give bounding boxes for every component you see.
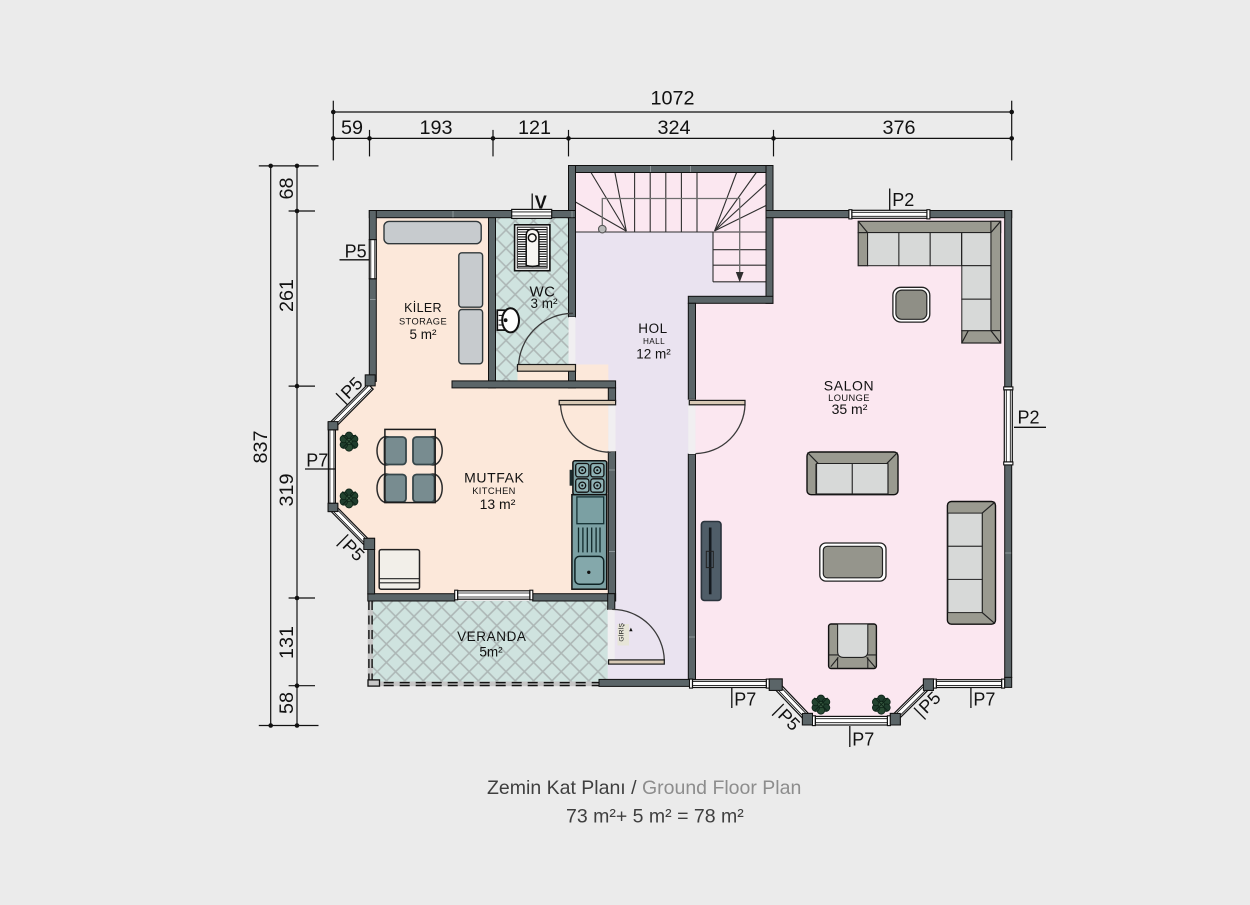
svg-text:324: 324 — [657, 117, 690, 139]
svg-text:59: 59 — [341, 117, 363, 139]
svg-text:Zemin Kat Planı / Ground Floor: Zemin Kat Planı / Ground Floor Plan — [487, 777, 801, 799]
svg-text:HOL: HOL — [638, 321, 668, 336]
svg-text:13 m²: 13 m² — [480, 496, 516, 512]
svg-text:12 m²: 12 m² — [636, 346, 671, 361]
svg-text:261: 261 — [276, 279, 298, 312]
svg-text:58: 58 — [276, 692, 298, 714]
svg-text:KITCHEN: KITCHEN — [472, 486, 516, 496]
svg-text:HALL: HALL — [643, 337, 665, 346]
svg-text:1072: 1072 — [650, 88, 694, 110]
svg-text:P2: P2 — [1018, 408, 1040, 428]
svg-text:3 m²: 3 m² — [531, 296, 559, 311]
svg-text:131: 131 — [276, 626, 298, 659]
svg-text:35 m²: 35 m² — [832, 401, 868, 417]
svg-text:73 m²+ 5 m² = 78 m²: 73 m²+ 5 m² = 78 m² — [566, 806, 744, 828]
svg-text:P7: P7 — [973, 690, 995, 710]
svg-text:P7: P7 — [734, 690, 756, 710]
svg-text:376: 376 — [882, 117, 915, 139]
svg-text:P5: P5 — [345, 241, 367, 261]
svg-text:STORAGE: STORAGE — [399, 317, 447, 327]
svg-text:319: 319 — [276, 473, 298, 506]
svg-text:VERANDA: VERANDA — [457, 629, 526, 644]
svg-text:GİRİŞ: GİRİŞ — [616, 623, 625, 642]
svg-text:P7: P7 — [306, 450, 328, 470]
svg-text:5m²: 5m² — [479, 644, 503, 659]
svg-text:KİLER: KİLER — [404, 301, 442, 315]
svg-text:121: 121 — [518, 117, 551, 139]
svg-text:837: 837 — [250, 430, 272, 463]
svg-text:MUTFAK: MUTFAK — [464, 470, 524, 486]
svg-text:193: 193 — [419, 117, 452, 139]
svg-text:V: V — [535, 193, 547, 213]
svg-text:P7: P7 — [852, 730, 874, 750]
svg-text:68: 68 — [276, 177, 298, 199]
svg-text:SALON: SALON — [824, 377, 874, 393]
svg-text:P2: P2 — [892, 190, 914, 210]
svg-text:5 m²: 5 m² — [410, 327, 438, 342]
